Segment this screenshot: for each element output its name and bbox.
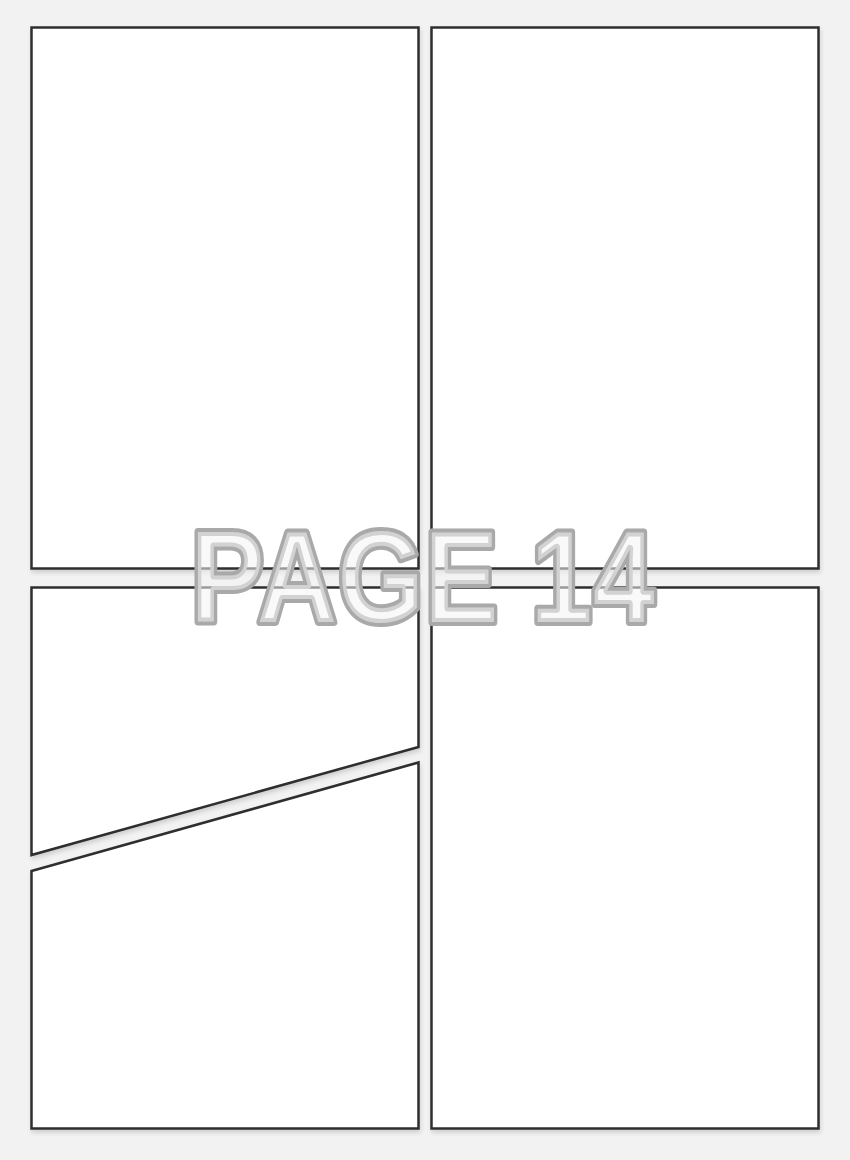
panel-top-left — [32, 28, 419, 569]
panel-top-right — [432, 28, 819, 569]
page-canvas: PAGE 14 — [0, 0, 850, 1160]
page-number-watermark: PAGE 14 — [191, 504, 656, 650]
panel-bottom-right — [432, 588, 819, 1129]
comic-page-template: PAGE 14 — [0, 0, 850, 1160]
